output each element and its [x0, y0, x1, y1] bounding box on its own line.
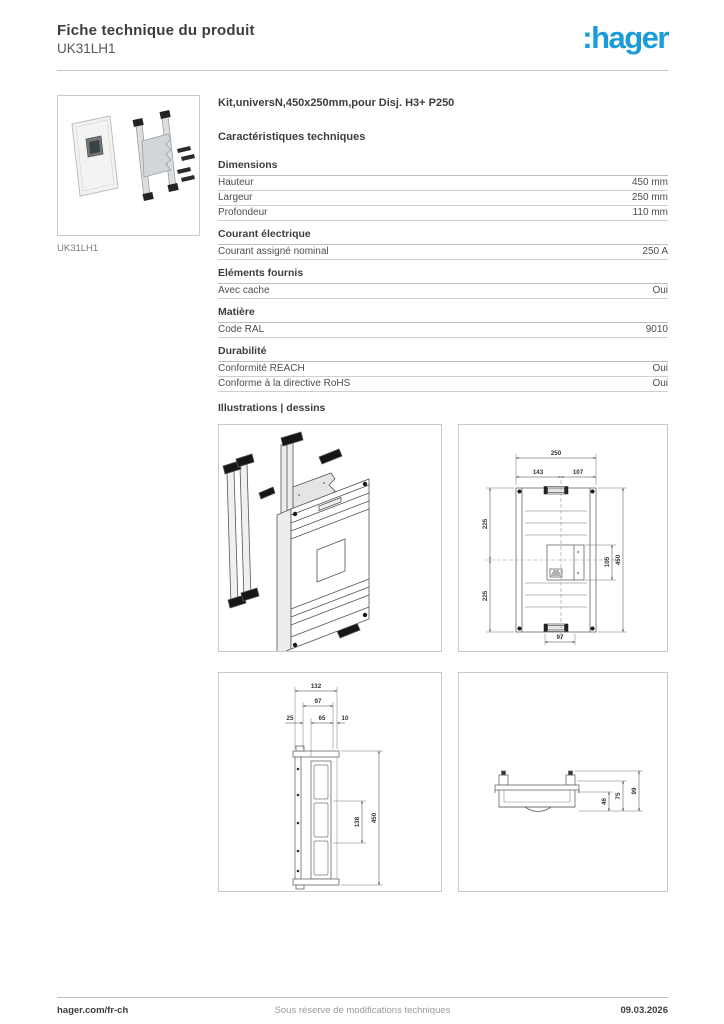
- content-column: Kit,universN,450x250mm,pour Disj. H3+ P2…: [218, 90, 668, 892]
- row-value: Oui: [652, 378, 668, 390]
- illustrations-grid: 250 143 107 225 225 105 450 97: [218, 424, 668, 892]
- profile-view-labels: 46 75 99: [601, 787, 638, 805]
- row-value: 250 A: [642, 246, 668, 258]
- footer: hager.com/fr-ch Sous réserve de modifica…: [57, 1005, 668, 1016]
- dim-label: 105: [604, 556, 611, 567]
- front-view-drawing: 250 143 107 225 225 105 450 97: [458, 424, 668, 652]
- footer-divider: [57, 997, 668, 998]
- dim-label: 75: [615, 792, 622, 799]
- row-label: Conforme à la directive RoHS: [218, 378, 350, 390]
- table-row: Conformité REACHOui: [218, 362, 668, 377]
- dim-label: 250: [551, 450, 562, 457]
- table-row: Courant assigné nominal250 A: [218, 245, 668, 260]
- fixing-pins: [177, 146, 195, 182]
- row-label: Courant assigné nominal: [218, 246, 329, 258]
- table-row: Conforme à la directive RoHSOui: [218, 377, 668, 392]
- cover-plate: [72, 116, 118, 196]
- page-title: Fiche technique du produit: [57, 22, 255, 39]
- table-row: Avec cacheOui: [218, 284, 668, 299]
- dim-label: 143: [533, 469, 544, 476]
- hager-logo: :hager: [582, 22, 668, 53]
- product-image-frame: [57, 95, 200, 236]
- section-elements: Eléments fournis Avec cacheOui: [218, 267, 668, 299]
- dim-label: 450: [615, 554, 622, 565]
- footer-note: Sous réserve de modifications techniques: [57, 1005, 668, 1016]
- row-value: Oui: [652, 285, 668, 297]
- dim-label: 107: [573, 469, 584, 476]
- row-value: 250 mm: [632, 192, 668, 204]
- table-row: Largeur250 mm: [218, 191, 668, 206]
- dim-label: 46: [601, 798, 608, 805]
- section-matiere: Matière Code RAL9010: [218, 306, 668, 338]
- characteristics-heading: Caractéristiques techniques: [218, 131, 668, 144]
- dim-label: 97: [315, 698, 322, 705]
- exploded-view: [223, 432, 369, 651]
- row-value: Oui: [652, 363, 668, 375]
- row-label: Hauteur: [218, 177, 254, 189]
- table-row: Hauteur450 mm: [218, 176, 668, 191]
- section-title: Courant électrique: [218, 228, 668, 245]
- side-view-drawing: 132 97 25 65 10 138 450: [218, 672, 442, 892]
- dim-label: 138: [354, 816, 361, 827]
- dim-label: 225: [482, 518, 489, 529]
- header-divider: [57, 70, 668, 71]
- table-row: Profondeur110 mm: [218, 206, 668, 221]
- dim-label: 132: [311, 683, 322, 690]
- product-description: Kit,universN,450x250mm,pour Disj. H3+ P2…: [218, 90, 668, 110]
- product-image-caption: UK31LH1: [57, 243, 98, 254]
- exploded-view-drawing: [218, 424, 442, 652]
- dim-label: 25: [287, 715, 294, 722]
- section-title: Durabilité: [218, 345, 668, 362]
- side-view-object: [293, 746, 339, 889]
- row-label: Avec cache: [218, 285, 270, 297]
- dim-label: 97: [557, 634, 564, 641]
- product-reference: UK31LH1: [57, 41, 116, 56]
- section-title: Eléments fournis: [218, 267, 668, 284]
- profile-view-object: [495, 771, 579, 812]
- section-durabilite: Durabilité Conformité REACHOui Conforme …: [218, 345, 668, 392]
- section-title: Dimensions: [218, 159, 668, 176]
- dim-label: 99: [631, 787, 638, 794]
- row-value: 450 mm: [632, 177, 668, 189]
- dim-label: 450: [371, 812, 378, 823]
- row-label: Largeur: [218, 192, 252, 204]
- illustrations-heading: Illustrations | dessins: [218, 402, 668, 415]
- front-view-object: [485, 480, 621, 640]
- datasheet-page: Fiche technique du produit UK31LH1 :hage…: [0, 0, 724, 1024]
- profile-view-drawing: 46 75 99: [458, 672, 668, 892]
- section-title: Matière: [218, 306, 668, 323]
- product-photo: [58, 96, 199, 235]
- table-row: Code RAL9010: [218, 323, 668, 338]
- row-value: 110 mm: [633, 207, 668, 219]
- row-label: Code RAL: [218, 324, 264, 336]
- mounting-bracket: [132, 110, 178, 201]
- section-dimensions: Dimensions Hauteur450 mm Largeur250 mm P…: [218, 159, 668, 221]
- section-courant: Courant électrique Courant assigné nomin…: [218, 228, 668, 260]
- dim-label: 65: [319, 715, 326, 722]
- row-value: 9010: [646, 324, 668, 336]
- row-label: Profondeur: [218, 207, 267, 219]
- dim-label: 10: [342, 715, 349, 722]
- row-label: Conformité REACH: [218, 363, 305, 375]
- dim-label: 225: [482, 590, 489, 601]
